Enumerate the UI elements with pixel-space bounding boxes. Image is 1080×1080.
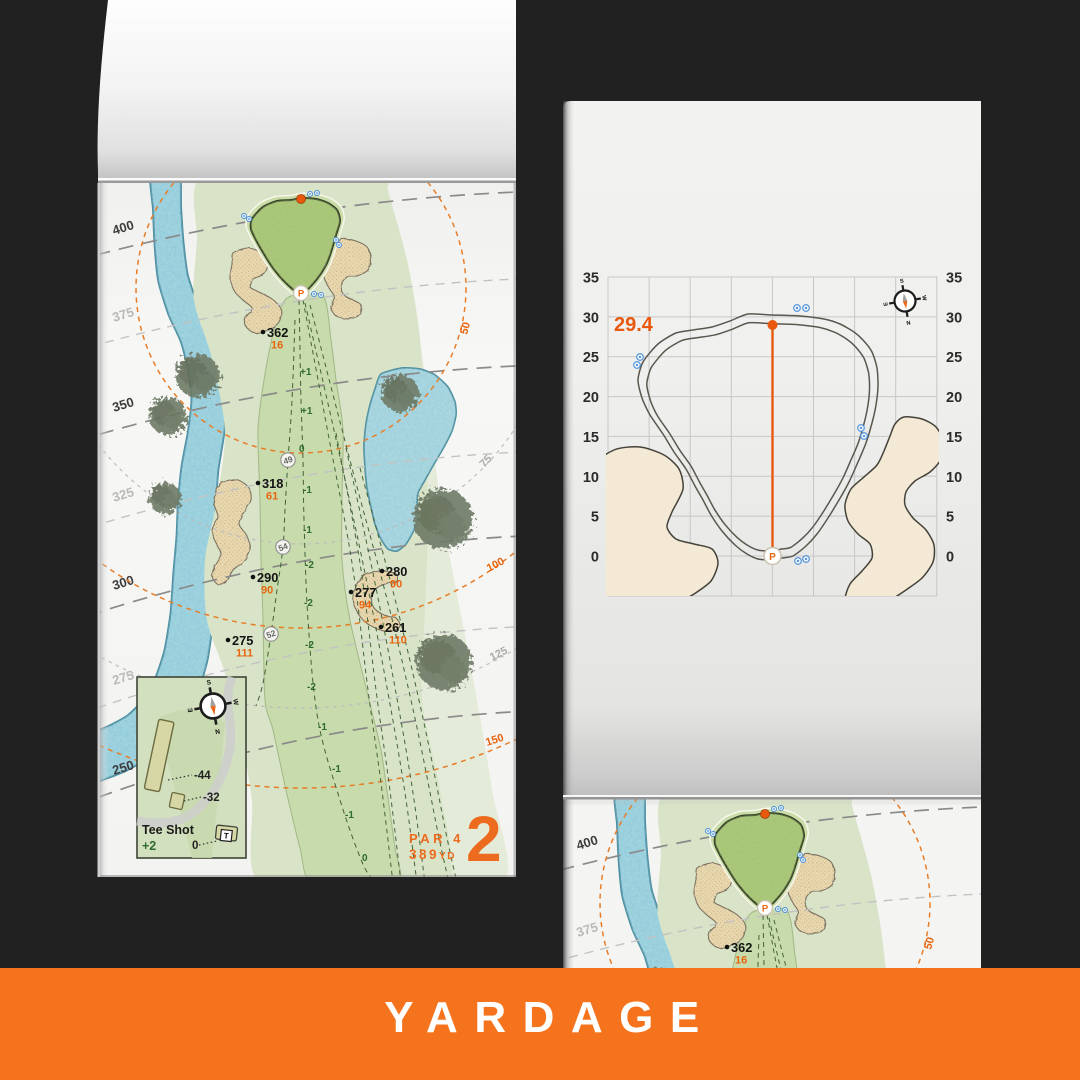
svg-text:0: 0	[591, 550, 599, 566]
svg-text:5: 5	[946, 510, 954, 526]
svg-text:0: 0	[946, 550, 954, 566]
svg-text:35: 35	[583, 271, 599, 287]
svg-text:15: 15	[583, 430, 599, 446]
svg-text:20: 20	[946, 390, 962, 406]
svg-text:20: 20	[583, 390, 599, 406]
svg-text:25: 25	[583, 350, 599, 366]
svg-text:29.4: 29.4	[614, 314, 654, 336]
svg-text:15: 15	[946, 430, 962, 446]
svg-text:10: 10	[583, 470, 599, 486]
svg-text:5: 5	[591, 510, 599, 526]
svg-text:30: 30	[583, 310, 599, 326]
svg-text:35: 35	[946, 271, 962, 287]
svg-text:10: 10	[946, 470, 962, 486]
svg-text:YARDAGE: YARDAGE	[384, 993, 715, 1042]
svg-text:25: 25	[946, 350, 962, 366]
svg-text:P: P	[769, 552, 776, 563]
svg-text:30: 30	[946, 310, 962, 326]
